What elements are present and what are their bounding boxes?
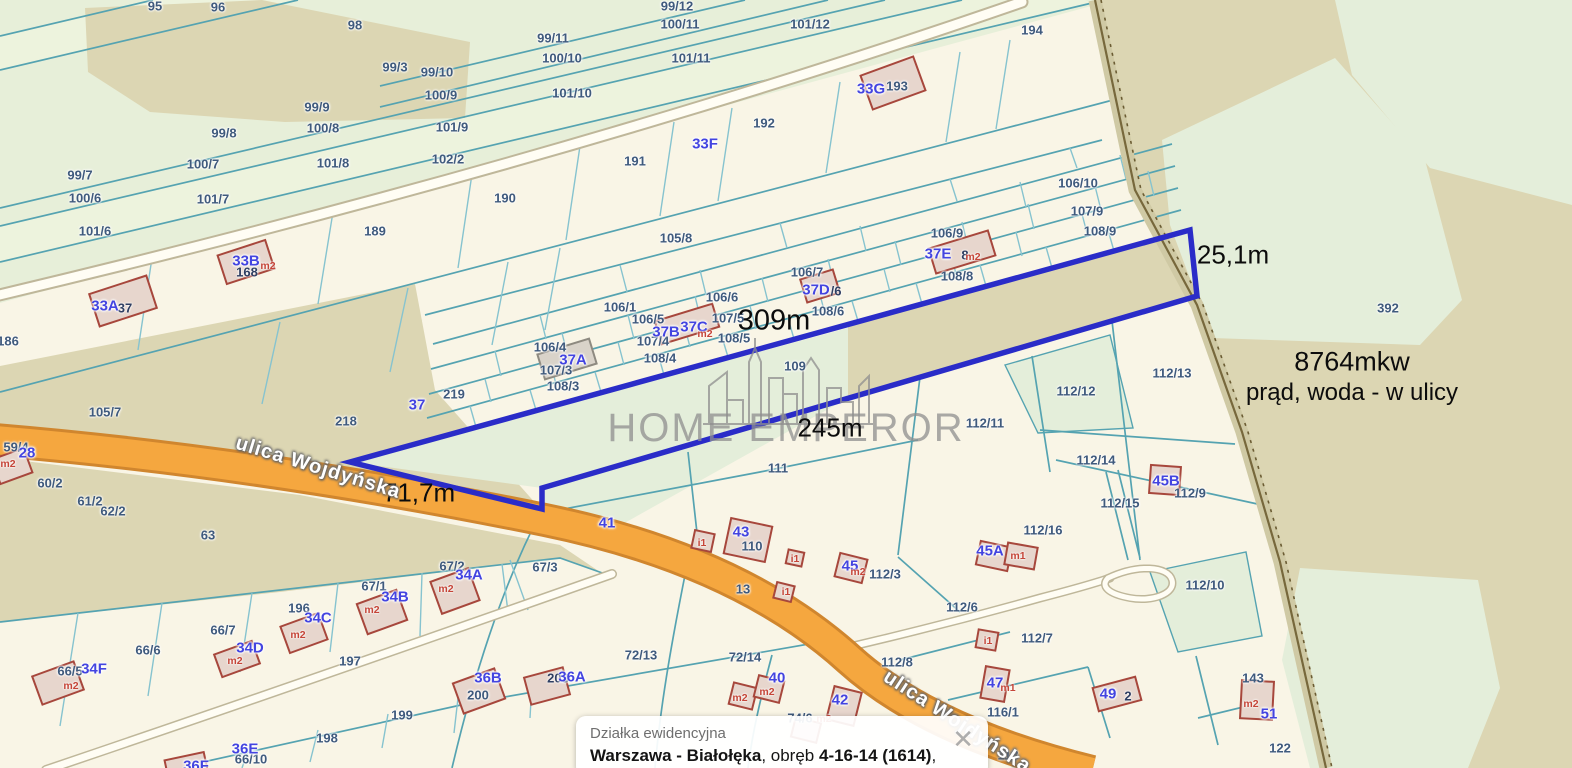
watermark-text: HOME EMPEROR <box>607 406 964 450</box>
building-footprint <box>1149 465 1181 495</box>
info-box-title: Działka ewidencyjna <box>590 725 974 742</box>
info-box-detail: Warszawa - Białołęka, obręb 4-16-14 (161… <box>590 746 974 768</box>
close-icon[interactable]: ✕ <box>952 726 974 752</box>
map-viewport[interactable]: HOME EMPEROR 95969899/12100/11101/1299/1… <box>0 0 1572 768</box>
info-box-text: 4-16-14 (1614) <box>819 746 931 765</box>
building-footprint <box>786 549 805 566</box>
building-footprint <box>724 518 773 562</box>
building-footprint <box>754 675 785 703</box>
building-footprint <box>691 530 714 552</box>
building-footprint <box>1240 680 1274 720</box>
info-box-text: , obręb <box>761 746 819 765</box>
building-footprint <box>1004 543 1037 570</box>
building-footprint <box>976 629 999 650</box>
building-footprint <box>773 582 794 602</box>
parcel-info-box: Działka ewidencyjna Warszawa - Białołęka… <box>576 716 988 768</box>
info-box-text: Warszawa - Białołęka <box>590 746 761 765</box>
building-footprint <box>980 666 1009 702</box>
map-canvas[interactable]: HOME EMPEROR <box>0 0 1572 768</box>
